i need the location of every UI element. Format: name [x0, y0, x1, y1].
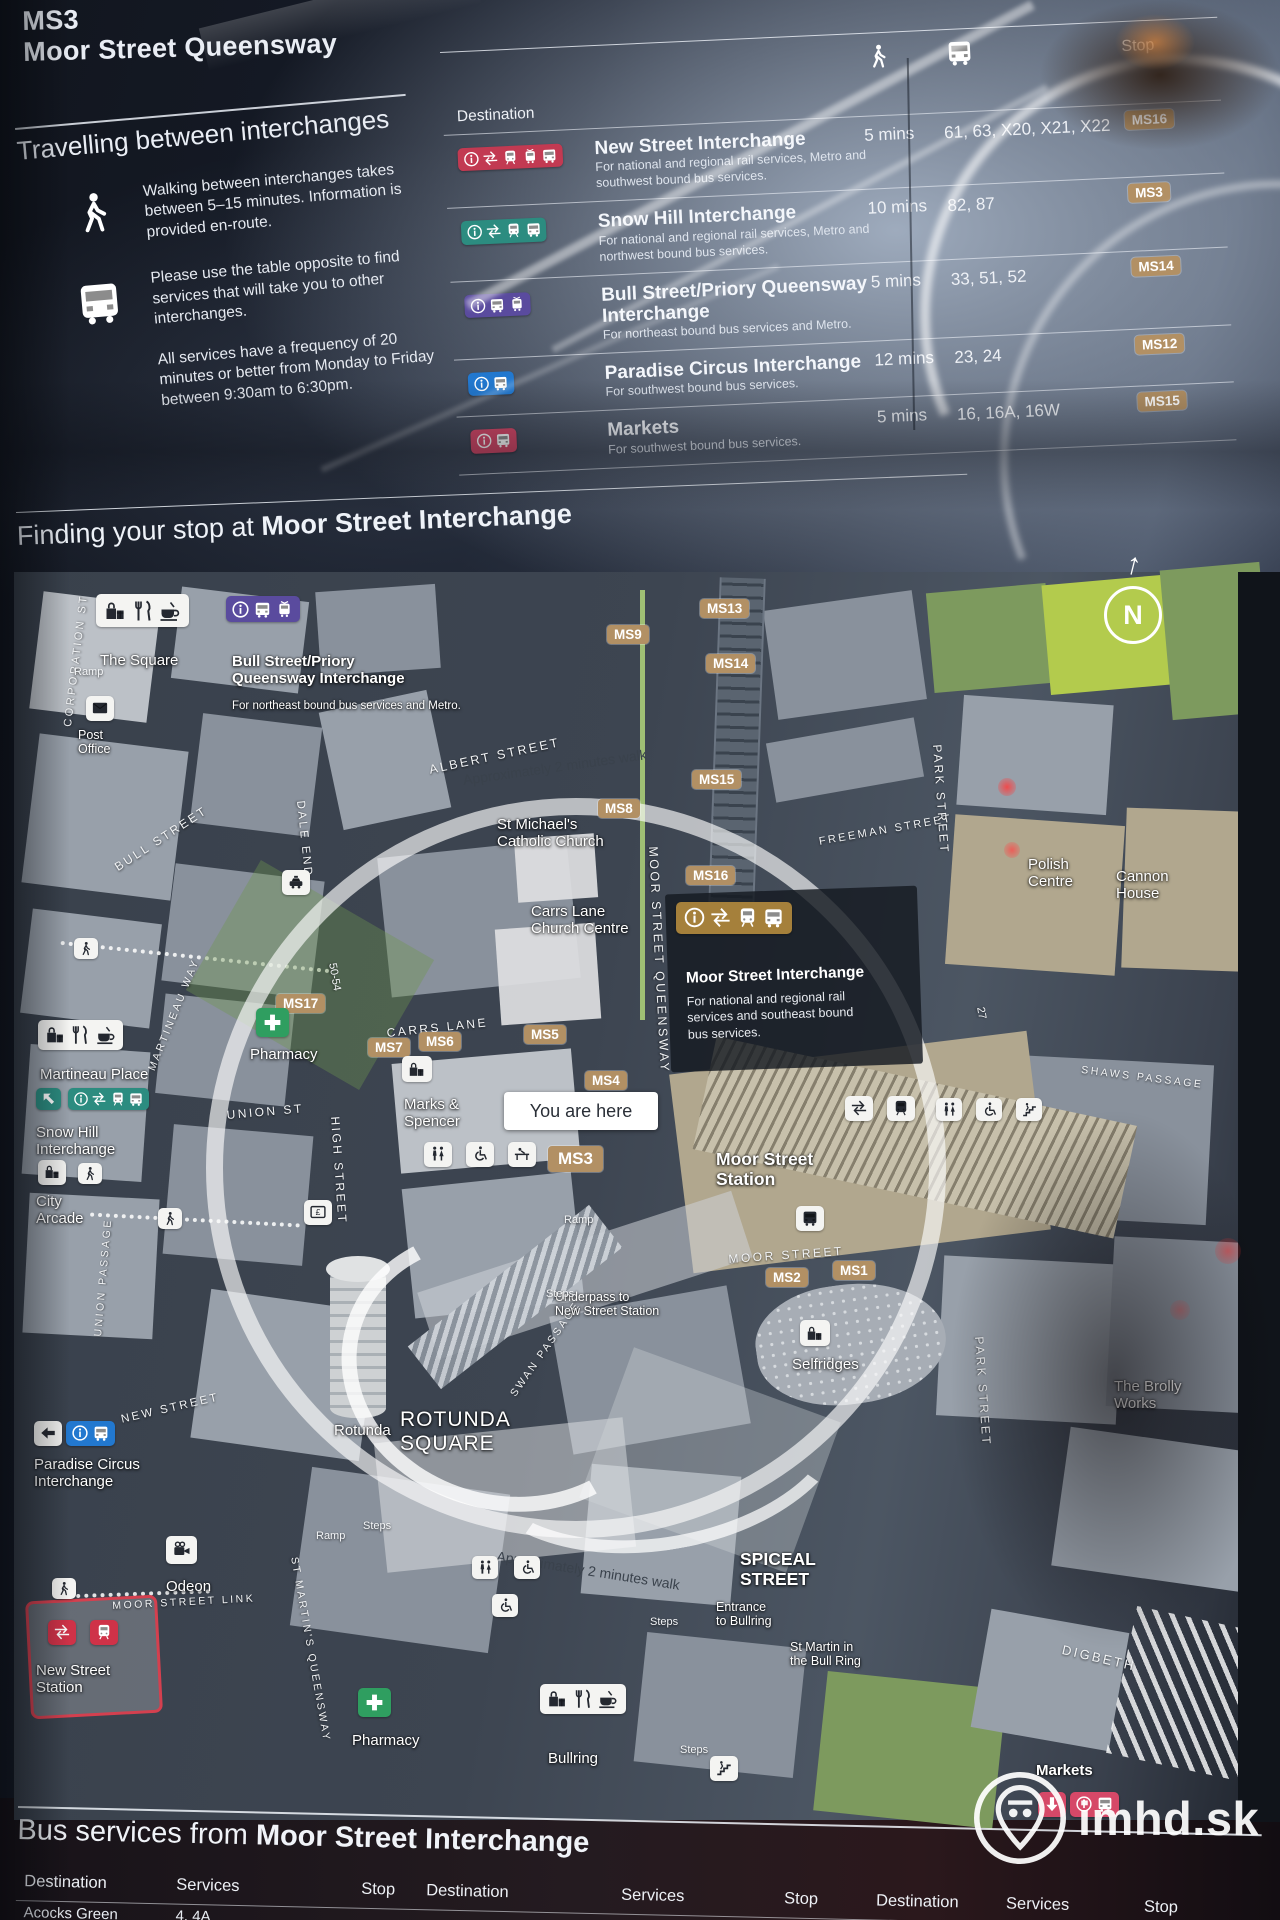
map-small-label: Ramp: [316, 1530, 345, 1542]
north-indicator: N: [1104, 586, 1162, 644]
baby-icon: [513, 1145, 531, 1163]
poi-label: Snow Hill Interchange: [36, 1124, 115, 1158]
bus-icon: [762, 906, 785, 929]
train-icon: [505, 222, 523, 240]
wheelchair-icon: [471, 1145, 489, 1163]
stop-code-badge: MS15: [1137, 391, 1187, 412]
icon-chip: [424, 1142, 452, 1167]
map-stop-chip: MS4: [585, 1071, 627, 1090]
stop-sign-photo: MS3 Moor Street Queensway Travelling bet…: [0, 0, 1280, 1920]
bus-destination: Acocks Green: [23, 1904, 118, 1920]
icon-chip: [402, 1056, 432, 1082]
icon-chip: [68, 1088, 149, 1110]
wheelchair-icon: [981, 1101, 998, 1118]
map-stop-chip: MS16: [686, 866, 735, 885]
cup-icon: [158, 599, 182, 623]
map-shape: [20, 908, 162, 1028]
bus-services-heading-prefix: Bus services from: [17, 1814, 256, 1851]
stairs-icon: [1021, 1101, 1038, 1118]
map-shape: [926, 583, 1054, 693]
interchange-table: Stop Destination New Street InterchangeF…: [440, 17, 1236, 475]
walk-time: 5 mins: [864, 124, 915, 146]
walk-icon: [78, 941, 93, 956]
poi-label: ROTUNDA SQUARE: [400, 1408, 511, 1456]
icon-chip: [514, 1556, 540, 1579]
rail-icon: [850, 1099, 868, 1117]
poi-label: Rotunda: [334, 1422, 391, 1439]
icon-chip: [90, 1620, 118, 1645]
interchange-rows: New Street InterchangeFor national and r…: [444, 100, 1237, 476]
wheelchair-icon: [497, 1597, 514, 1614]
bus-icon: [128, 1091, 144, 1107]
cup-icon: [597, 1688, 619, 1710]
walking-info: Walking between interchanges takes betwe…: [21, 158, 425, 254]
map-stop-chip: MS8: [598, 799, 640, 818]
icon-chip: [887, 1096, 915, 1121]
map-small-label: Steps: [363, 1520, 391, 1532]
stairs-icon: [715, 1759, 733, 1777]
walk-time: 5 mins: [877, 406, 928, 428]
gift-icon: [103, 599, 127, 623]
map-stop-chip: MS14: [706, 654, 755, 673]
walk-time-column-icon: [864, 43, 891, 70]
bus-info: Please use the table opposite to find se…: [28, 245, 439, 422]
icon-chip: [508, 1142, 536, 1167]
arrow-left-icon: [39, 1424, 57, 1442]
info-icon: [475, 433, 493, 451]
poi-label: Marks & Spencer: [404, 1096, 460, 1130]
map-shape: [936, 1255, 1124, 1424]
bus-icon: [72, 276, 126, 330]
rail-icon: [53, 1623, 71, 1641]
cup-icon: [95, 1024, 117, 1046]
stop-code-badge: MS14: [1131, 255, 1181, 276]
stop-header: MS3 Moor Street Queensway: [22, 0, 337, 68]
poi-label: Polish Centre: [1028, 856, 1073, 890]
fork-icon: [131, 599, 155, 623]
bus-table-header: Stop: [784, 1889, 818, 1909]
bus-table-header: Destination: [24, 1872, 107, 1893]
icon-chip: [358, 1688, 391, 1717]
poi-label: Moor Street Station: [716, 1150, 813, 1190]
train-icon: [736, 906, 759, 929]
poi-label: Post Office: [78, 728, 110, 757]
icon-chip: [304, 1200, 332, 1225]
poi-label: SPICEAL STREET: [740, 1550, 816, 1590]
bus-services: 16, 16A, 16W: [957, 397, 1126, 428]
bus-table-header: Services: [1006, 1894, 1070, 1914]
toilets-icon: [429, 1145, 447, 1163]
icon-chip: [464, 292, 531, 318]
map-shape: [1238, 572, 1280, 1822]
icon-chip: [96, 594, 189, 627]
gift-icon: [546, 1688, 568, 1710]
icon-chip: [468, 371, 515, 396]
poi-label: Pharmacy: [352, 1732, 420, 1749]
info-icon: [469, 297, 487, 315]
bus-services: 82, 87: [947, 188, 1116, 219]
imhd-logo-icon: [972, 1770, 1068, 1866]
map-stop-chip: MS7: [368, 1038, 410, 1057]
bus-table-header: Destination: [876, 1891, 959, 1912]
map-stop-chip: MS6: [419, 1032, 461, 1051]
gift-icon: [407, 1060, 426, 1079]
map-shape: [945, 814, 1125, 975]
taxi-icon: [287, 873, 305, 891]
bus-services-column-icon: [944, 37, 975, 68]
icon-chip: [976, 1098, 1002, 1121]
icon-chip: [796, 1206, 824, 1231]
poi-label: The Square: [100, 652, 178, 669]
bus-table-header: Stop: [361, 1880, 395, 1900]
poi-label: Bullring: [548, 1750, 598, 1767]
map-shape: [971, 1609, 1130, 1751]
cross-icon: [262, 1012, 283, 1033]
walk-icon: [56, 1581, 71, 1596]
bus-icon: [541, 147, 559, 165]
icon-chip: [472, 1556, 498, 1579]
bus-note-2: All services have a frequency of 20 minu…: [157, 326, 439, 411]
toilets-icon: [941, 1101, 958, 1118]
map-shape: [956, 695, 1113, 815]
info-icon: [71, 1424, 89, 1442]
bus-icon: [253, 600, 272, 619]
stop-code-badge: MS12: [1135, 334, 1185, 355]
bus-table-header: Destination: [426, 1881, 509, 1902]
bus-icon: [488, 296, 506, 314]
icon-chip: [461, 218, 547, 245]
icon-chip: [38, 1160, 66, 1185]
imhd-watermark-text: imhd.sk: [1078, 1791, 1259, 1846]
walk-icon: [82, 1166, 97, 1181]
arrow-upleft-icon: [41, 1091, 57, 1107]
icon-chip: [34, 1421, 62, 1446]
walk-time: 10 mins: [867, 196, 927, 219]
cross-icon: [364, 1692, 385, 1713]
map-small-label: Steps: [546, 1288, 574, 1300]
walk-icon: [162, 1211, 177, 1226]
icon-chip: [676, 902, 792, 934]
info-icon: [462, 150, 480, 168]
rail-icon: [485, 223, 503, 241]
poi-label: Pharmacy: [250, 1046, 318, 1063]
bus-services: 33, 51, 52: [950, 261, 1119, 292]
map-small-label: 27: [974, 1006, 988, 1020]
poi-label: Selfridges: [792, 1356, 859, 1373]
bus-route-numbers: 4, 4A: [175, 1908, 210, 1920]
bus-services: 23, 24: [954, 339, 1123, 370]
poi-label: St Martin in the Bull Ring: [790, 1640, 861, 1669]
bus-icon: [801, 1209, 819, 1227]
map-stop-chip: MS5: [524, 1025, 566, 1044]
map-small-label: Steps: [680, 1744, 708, 1756]
icon-chip: [226, 596, 300, 622]
you-are-here-marker: You are here: [504, 1092, 658, 1130]
gift-icon: [44, 1024, 66, 1046]
imhd-watermark: imhd.sk: [972, 1770, 1259, 1866]
icon-chip: [710, 1756, 738, 1781]
map-small-label: Ramp: [74, 666, 103, 678]
bus-table-header: Services: [621, 1886, 685, 1906]
rail-icon: [482, 150, 500, 168]
poi-label: Odeon: [166, 1578, 211, 1595]
icon-chip: [936, 1098, 962, 1121]
cash-icon: [309, 1203, 327, 1221]
icon-chip: [492, 1594, 518, 1617]
poi-label: Carrs Lane Church Centre: [531, 903, 629, 937]
bus-icon: [92, 1424, 110, 1442]
bus-table-header: Stop: [1144, 1898, 1178, 1918]
tram-icon: [275, 600, 294, 619]
map-stop-chip: MS9: [607, 625, 649, 644]
icon-chip: [78, 1163, 102, 1184]
info-icon: [466, 224, 484, 242]
map-small-label: Ramp: [564, 1214, 593, 1226]
info-icon: [683, 906, 706, 929]
poi-label: Martineau Place: [40, 1066, 148, 1083]
map-stop-chip: MS13: [700, 599, 749, 618]
walk-time: 12 mins: [874, 348, 934, 371]
bus-icon: [492, 374, 510, 392]
moor-panel-subtitle: For national and regional rail services …: [686, 988, 854, 1043]
bus-services-heading-bold: Moor Street Interchange: [256, 1819, 590, 1859]
poi-label: Bull Street/Priory Queensway Interchange: [232, 653, 405, 687]
tram-icon: [521, 148, 539, 166]
icon-chip: [470, 428, 517, 453]
gift-icon: [805, 1324, 824, 1343]
info-icon: [73, 1091, 89, 1107]
icon-chip: [540, 1684, 626, 1714]
map-stop-chip: MS1: [833, 1261, 875, 1280]
poi-label: Paradise Circus Interchange: [34, 1456, 140, 1490]
fork-icon: [572, 1688, 594, 1710]
walk-note: Walking between interchanges takes betwe…: [142, 158, 424, 243]
poi-label: New Street Station: [36, 1662, 110, 1696]
gift-icon: [43, 1163, 61, 1181]
train-icon: [110, 1091, 126, 1107]
icon-chip: [800, 1320, 830, 1346]
map-shape: [25, 1595, 163, 1720]
info-icon: [231, 600, 250, 619]
poi-label: St Michael's Catholic Church: [497, 816, 604, 850]
fork-icon: [69, 1024, 91, 1046]
poi-label: The Brolly Works: [1114, 1378, 1182, 1412]
bus-table-header: Services: [176, 1876, 240, 1896]
icon-chip: [48, 1620, 76, 1645]
icon-chip: [845, 1096, 873, 1121]
rail-icon: [709, 906, 732, 929]
info-icon: [472, 375, 490, 393]
toilets-icon: [477, 1559, 494, 1576]
map-shape: [1051, 1427, 1269, 1593]
train-icon: [501, 149, 519, 167]
stop-code-badge: MS3: [1128, 182, 1171, 203]
poi-label: Entrance to Bullring: [716, 1600, 772, 1629]
moor-panel-title: Moor Street Interchange: [686, 964, 865, 988]
train-icon: [95, 1623, 113, 1641]
walk-time: 5 mins: [870, 270, 921, 292]
stop-column-header: Stop: [1121, 37, 1155, 56]
poi-label: Cannon House: [1116, 868, 1169, 902]
stop-code-badge: MS16: [1124, 109, 1174, 130]
map-stop-chip: MS15: [692, 770, 741, 789]
bus-icon: [524, 221, 542, 239]
icon-chip: [256, 1008, 289, 1037]
icon-chip: [52, 1578, 76, 1599]
map-stop-chip: MS2: [766, 1268, 808, 1287]
poi-label: For northeast bound bus services and Met…: [232, 700, 461, 713]
icon-chip: [1016, 1098, 1042, 1121]
rail-icon: [91, 1091, 107, 1107]
icon-chip: [466, 1142, 494, 1167]
icon-chip: [36, 1088, 61, 1110]
icon-chip: [86, 696, 114, 721]
envelope-icon: [91, 699, 109, 717]
train-icon: [892, 1099, 910, 1117]
icon-chip: [66, 1421, 115, 1446]
bus-note-1: Please use the table opposite to find se…: [150, 245, 432, 330]
poi-label: City Arcade: [36, 1193, 84, 1227]
camera-icon: [172, 1540, 192, 1560]
icon-chip: [158, 1208, 182, 1229]
map-stop-chip: MS3: [548, 1146, 603, 1172]
map-shape: [763, 590, 927, 720]
bus-services: 61, 63, X20, X21, X22: [944, 115, 1113, 146]
icon-chip: [282, 870, 310, 895]
map-shape: [21, 733, 188, 900]
icon-chip: [457, 144, 563, 172]
icon-chip: [166, 1536, 197, 1564]
map-small-label: Steps: [650, 1616, 678, 1628]
walk-icon: [69, 189, 117, 237]
icon-chip: [38, 1020, 123, 1050]
icon-chip: [74, 938, 98, 959]
bus-icon: [495, 432, 513, 450]
travel-info-section: Travelling between interchanges Walking …: [15, 93, 441, 448]
tram-icon: [508, 295, 526, 313]
wheelchair-icon: [519, 1559, 536, 1576]
